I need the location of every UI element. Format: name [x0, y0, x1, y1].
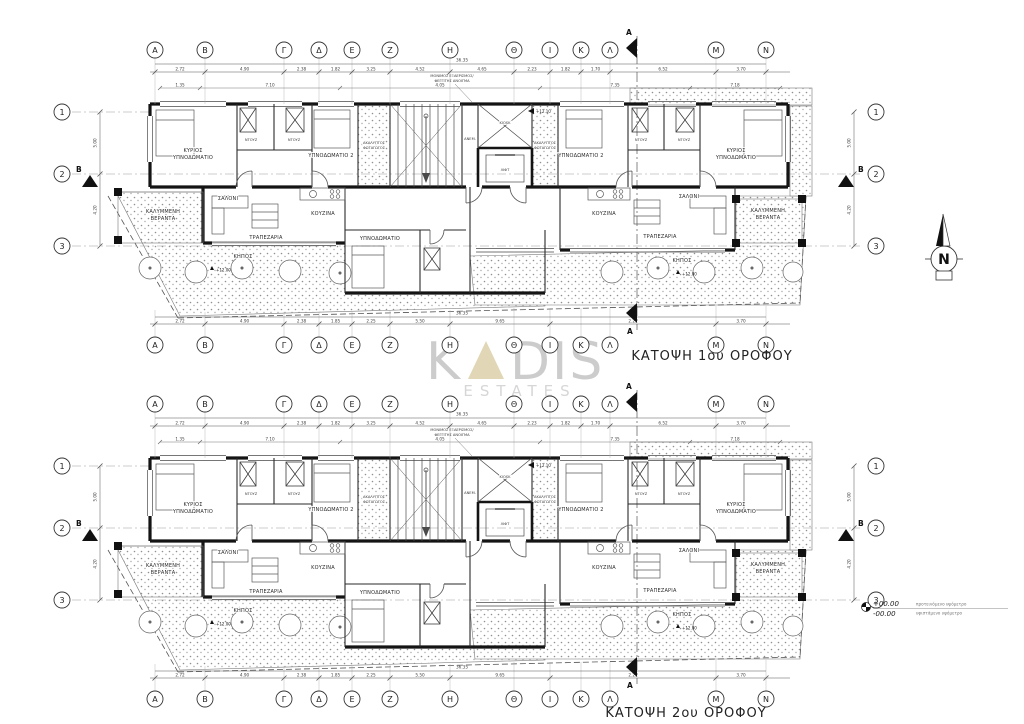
floor-plan-sheet: 36.35 2.72 4.90 2.38 1.82 3.25 4.52 4.65…: [0, 0, 1024, 724]
plan-first-floor: [54, 28, 884, 353]
elevation-key: +00.00 -00.00 προτεινόμενο υψόμετρο υφισ…: [862, 600, 1009, 618]
compass-needle-icon: [936, 214, 943, 246]
plan-second-floor: [54, 382, 884, 707]
elevation-existing-value: -00.00: [873, 610, 896, 618]
plan-title-first: ΚΑΤΟΨΗ 1ου ΟΡΟΦΟΥ: [631, 349, 792, 364]
elevation-proposed-value: +00.00: [873, 600, 899, 608]
watermark-estates: ESTATES: [463, 382, 576, 400]
elevation-proposed-label: προτεινόμενο υψόμετρο: [916, 602, 967, 607]
drawing-canvas: 36.35 2.72 4.90 2.38 1.82 3.25 4.52 4.65…: [0, 0, 1024, 724]
north-label: N: [938, 252, 950, 268]
north-compass: N: [925, 214, 963, 280]
watermark-triangle-a: [468, 341, 504, 379]
plan-title-second: ΚΑΤΟΨΗ 2ου ΟΡΟΦΟΥ: [605, 706, 766, 721]
elevation-existing-label: υφιστάμενο υψόμετρο: [916, 611, 963, 616]
